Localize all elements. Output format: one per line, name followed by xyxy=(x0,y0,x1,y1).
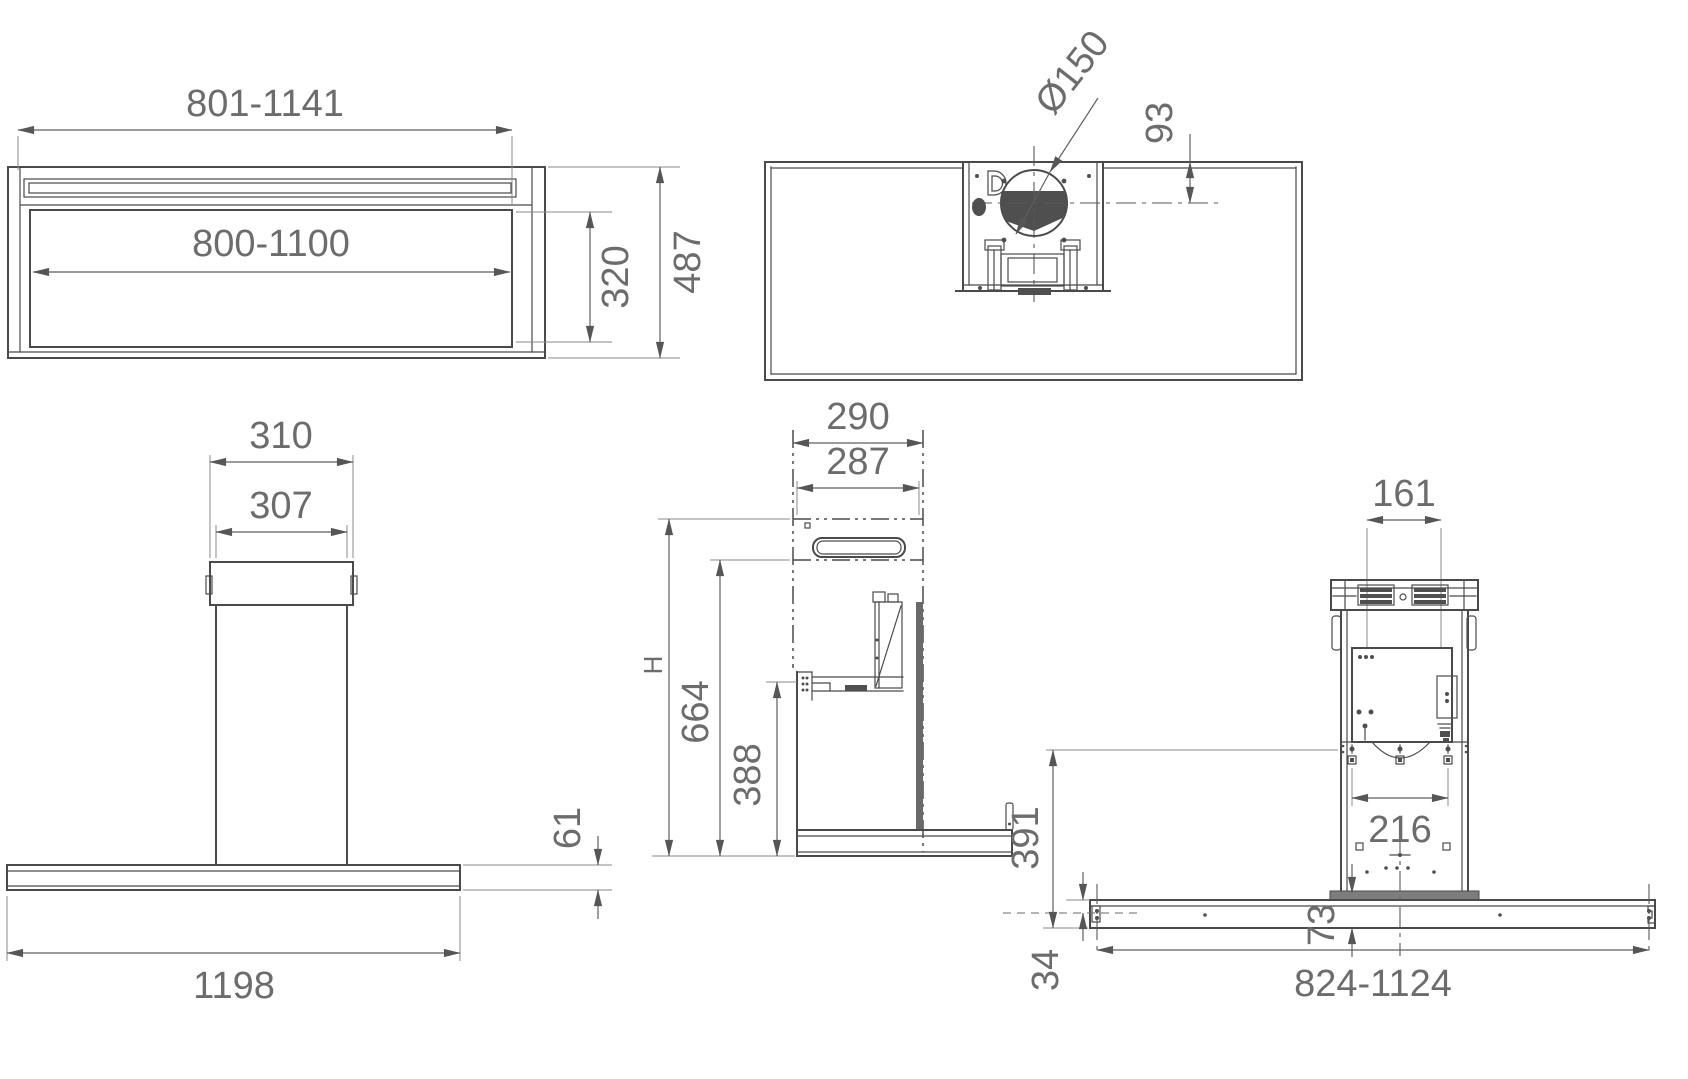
motor-box xyxy=(1352,648,1457,742)
light-strip xyxy=(24,179,516,197)
vent-slot-right xyxy=(1412,585,1448,605)
front-top-view: 801-1141 800-1100 320 487 xyxy=(8,83,709,358)
mounting-screws xyxy=(1342,745,1468,764)
canopy-front xyxy=(7,865,460,890)
dim-canopy-height: 61 xyxy=(463,807,612,919)
dim-canopy-width: 1198 xyxy=(7,896,460,1007)
dim-inner-width: 800-1100 xyxy=(33,223,510,272)
top-view: Ø150 93 xyxy=(765,23,1302,380)
dim-label-chimney-width: 307 xyxy=(249,485,312,527)
dim-label-column-height: 391 xyxy=(1005,806,1047,869)
front-view: 310 307 61 1198 xyxy=(7,415,612,1007)
hood-body-side xyxy=(797,592,1013,856)
dim-label-overall-depth: 487 xyxy=(667,230,709,293)
dim-label-bracket-width: 310 xyxy=(249,415,312,457)
dim-label-overall-height: H xyxy=(638,656,668,675)
dim-label-duct-diameter: Ø150 xyxy=(1027,23,1117,122)
dim-label-body-height: 388 xyxy=(727,743,769,806)
dim-label-duct-offset: 93 xyxy=(1139,102,1181,144)
dim-label-canopy-width: 1198 xyxy=(193,965,275,1007)
top-cap xyxy=(1331,580,1478,610)
dim-chimney-inner-depth: 287 xyxy=(797,441,919,515)
arc-plate xyxy=(1341,742,1468,764)
dim-chimney-width: 307 xyxy=(216,485,347,558)
dim-upper-height: 664 xyxy=(675,560,790,856)
dim-label-outer-width: 801-1141 xyxy=(186,83,344,125)
dim-duct-offset: 93 xyxy=(1139,102,1190,203)
vent-slot-left xyxy=(1358,585,1394,605)
mounting-bracket-plan xyxy=(985,240,1080,295)
back-wall xyxy=(916,602,923,830)
dim-inner-depth: 320 xyxy=(516,212,637,342)
technical-drawing-page: 801-1141 800-1100 320 487 xyxy=(0,0,1688,1079)
dim-label-chimney-inner-depth: 287 xyxy=(826,441,889,483)
dim-label-inner-width: 800-1100 xyxy=(192,223,350,265)
side-clip-left xyxy=(1332,616,1341,650)
dim-outer-width: 801-1141 xyxy=(18,83,512,204)
range-hood-dimension-drawing: 801-1141 800-1100 320 487 xyxy=(0,0,1688,1079)
dim-label-canopy-height: 61 xyxy=(547,807,589,849)
dim-body-height: 388 xyxy=(727,682,797,856)
dim-foot-height: 73 xyxy=(1301,864,1352,957)
terminal-bracket xyxy=(1437,676,1457,718)
dim-label-inner-depth: 320 xyxy=(595,245,637,308)
dim-label-upper-height: 664 xyxy=(675,680,717,743)
dim-label-foot-height: 73 xyxy=(1301,904,1343,946)
dim-rail-offset: 34 xyxy=(1025,872,1090,991)
dim-label-screw-spacing: 216 xyxy=(1368,809,1431,851)
dim-chimney-depth: 290 xyxy=(793,396,923,443)
dim-column-height: 391 xyxy=(1005,750,1338,928)
dim-vent-spacing: 161 xyxy=(1367,473,1441,520)
dim-screw-spacing: 216 xyxy=(1352,768,1448,851)
rear-view: 161 216 391 34 73 824-1124 xyxy=(1003,473,1655,1005)
cap-center-hole xyxy=(1400,594,1406,600)
dim-label-chimney-depth: 290 xyxy=(826,396,889,438)
dim-rail-width: 824-1124 xyxy=(1097,950,1649,1005)
dim-label-rail-width: 824-1124 xyxy=(1294,963,1452,1005)
dim-label-rail-offset: 34 xyxy=(1025,949,1067,991)
side-view: H 664 388 290 287 xyxy=(638,396,1013,856)
dim-label-vent-spacing: 161 xyxy=(1372,473,1435,515)
cable-hole xyxy=(972,198,986,216)
chimney-collar xyxy=(210,562,353,605)
